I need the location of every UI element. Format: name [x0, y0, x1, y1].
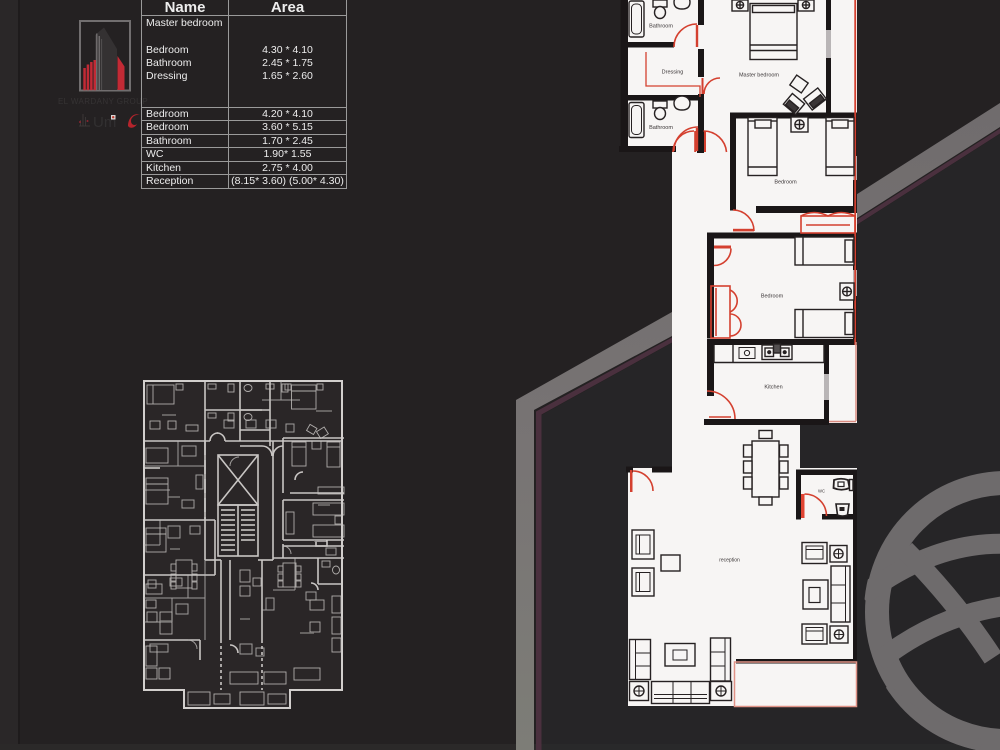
svg-text:Dressing: Dressing: [662, 70, 684, 76]
svg-text:Bathroom: Bathroom: [649, 24, 673, 30]
svg-text:Bathroom: Bathroom: [649, 125, 673, 131]
svg-text:WC: WC: [818, 489, 825, 494]
svg-text:Bedroom: Bedroom: [761, 294, 784, 300]
svg-text:Bedroom: Bedroom: [774, 180, 797, 186]
svg-text:Master bedroom: Master bedroom: [739, 73, 779, 79]
svg-text:reception: reception: [719, 558, 740, 564]
svg-text:Kitchen: Kitchen: [764, 385, 782, 391]
